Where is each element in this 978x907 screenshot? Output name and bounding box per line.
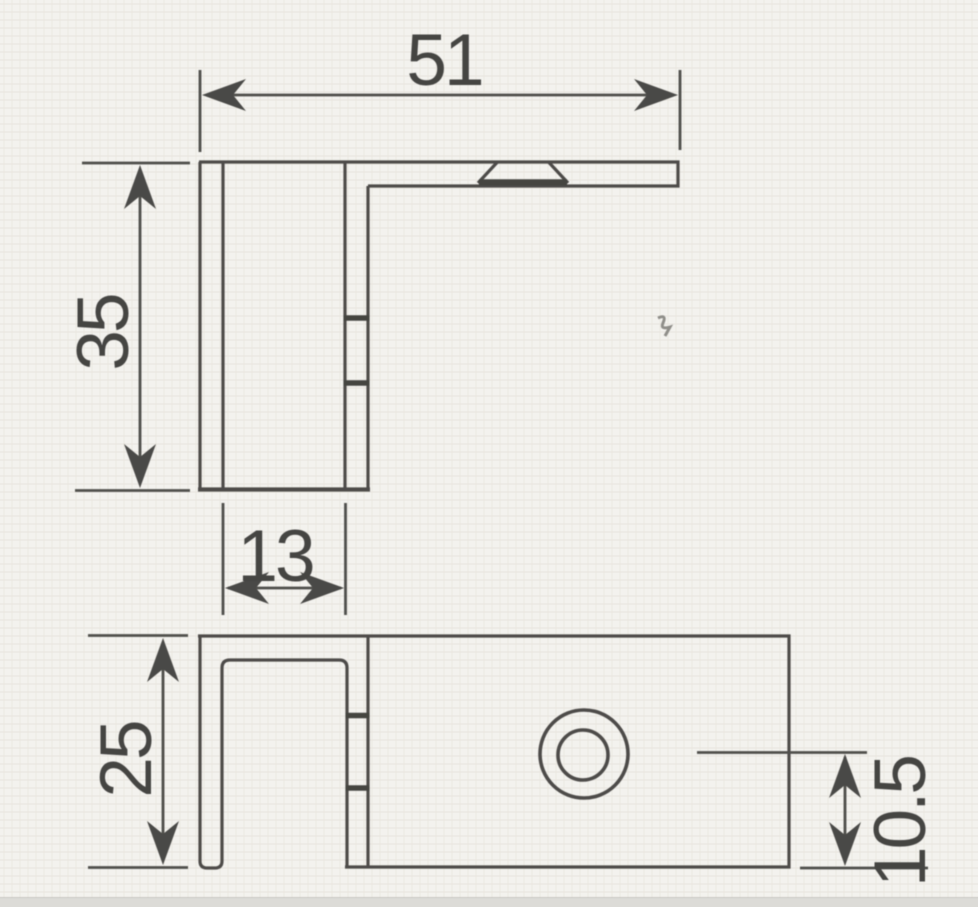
dim51-label: 51 bbox=[406, 20, 482, 101]
dim13-label: 13 bbox=[237, 516, 313, 597]
dim35-label: 35 bbox=[63, 295, 144, 371]
scan-edge-strip bbox=[0, 898, 978, 907]
dim25-label: 25 bbox=[86, 722, 167, 798]
drawing-canvas: 51 35 13 bbox=[0, 0, 978, 907]
scanned-technical-drawing: 51 35 13 bbox=[0, 0, 978, 907]
dim105-label: 10.5 bbox=[860, 757, 941, 887]
